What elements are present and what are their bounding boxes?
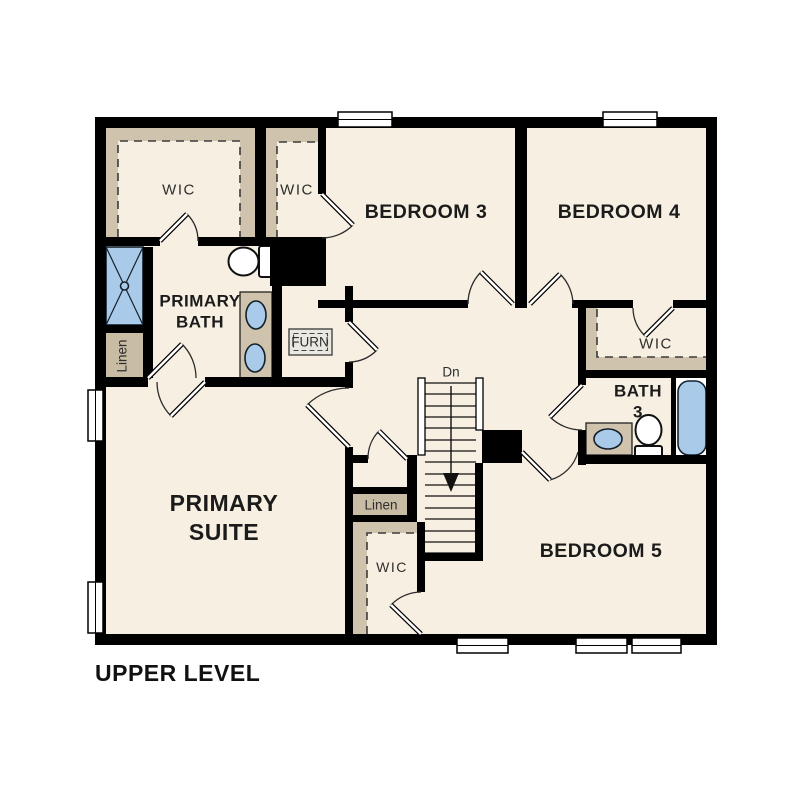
wall-shower-right — [143, 247, 153, 325]
bedroom5-wic-label: WIC — [376, 559, 408, 575]
wall-bedroom3-4-divider — [515, 128, 527, 308]
hall-linen-label: Linen — [364, 498, 397, 513]
window-icon — [88, 582, 103, 633]
bath3-label-line1: BATH — [614, 382, 662, 401]
wall-suite-top-left — [95, 377, 148, 387]
wall-bath3-bottom — [578, 455, 706, 464]
shower-icon — [106, 247, 143, 325]
primary-bath-label-line2: BATH — [176, 313, 224, 332]
wall-wic-divider — [255, 128, 266, 238]
wall-tub-divider — [671, 378, 676, 455]
floor-plan-drawing: WIC WIC BEDROOM 3 BEDROOM 4 PRIMARY BATH… — [0, 0, 810, 810]
primary-bath-label-line1: PRIMARY — [159, 292, 240, 311]
wall-furn-right-lower — [345, 362, 353, 388]
primary-linen-label: Linen — [115, 339, 130, 372]
primary-toilet-icon — [229, 246, 274, 277]
window-icon — [603, 112, 657, 127]
wall-suite-right — [345, 447, 353, 634]
bedroom4-wic-label: WIC — [639, 336, 673, 353]
wall-bedroom4-wic-bottom — [578, 370, 706, 378]
wall-stair-chase — [482, 430, 522, 463]
stair-rail-left — [418, 378, 425, 455]
wall-plumbing-chase — [270, 246, 326, 286]
window-icon — [576, 638, 627, 653]
wall-primary-wic-bottom-left — [95, 237, 160, 246]
bedroom3-label: BEDROOM 3 — [365, 201, 488, 223]
wall-outer-right — [706, 117, 717, 645]
window-icon — [88, 390, 103, 441]
bedroom3-wic-label: WIC — [280, 182, 314, 199]
window-icon — [457, 638, 508, 653]
furnace-label: FURN — [291, 335, 329, 350]
stair-rail-right — [476, 378, 483, 430]
wall-stair-right — [475, 463, 483, 555]
bedroom5-wic-floor — [367, 533, 417, 634]
floor-plan-upper-level: WIC WIC BEDROOM 3 BEDROOM 4 PRIMARY BATH… — [0, 0, 810, 810]
primary-suite-label-line1: PRIMARY — [170, 490, 279, 516]
wall-band-under-wic2 — [256, 237, 326, 246]
primary-suite-label-line2: SUITE — [189, 519, 259, 545]
wall-stair-left — [407, 455, 417, 515]
bath3-label-line2: 3 — [633, 403, 643, 422]
wall-linen-bottom — [353, 515, 417, 522]
bedroom4-label: BEDROOM 4 — [558, 201, 681, 223]
wall-vanity-right — [272, 286, 282, 378]
stairs-down-label: Dn — [442, 365, 459, 380]
wall-stair-bottom — [417, 553, 483, 561]
bathtub-icon — [678, 381, 706, 455]
plan-title: UPPER LEVEL — [95, 660, 260, 686]
primary-wic-label: WIC — [162, 182, 196, 199]
wall-primary-wic-bottom-right — [198, 237, 266, 246]
wall-bedroom4-bottom-right — [673, 300, 706, 308]
window-icon — [632, 638, 681, 653]
wall-bedroom3-bottom — [318, 300, 468, 308]
wall-bedroom3-left — [318, 128, 326, 194]
wall-suite-top-right — [205, 377, 353, 387]
wall-linen-top — [353, 487, 417, 494]
bath3-sink-icon — [594, 429, 622, 449]
window-icon — [338, 112, 392, 127]
wall-hall-closet-top — [353, 455, 368, 463]
wall-below-shower — [95, 325, 153, 333]
bedroom5-label: BEDROOM 5 — [540, 540, 663, 562]
wall-furn-right-upper — [345, 286, 353, 322]
